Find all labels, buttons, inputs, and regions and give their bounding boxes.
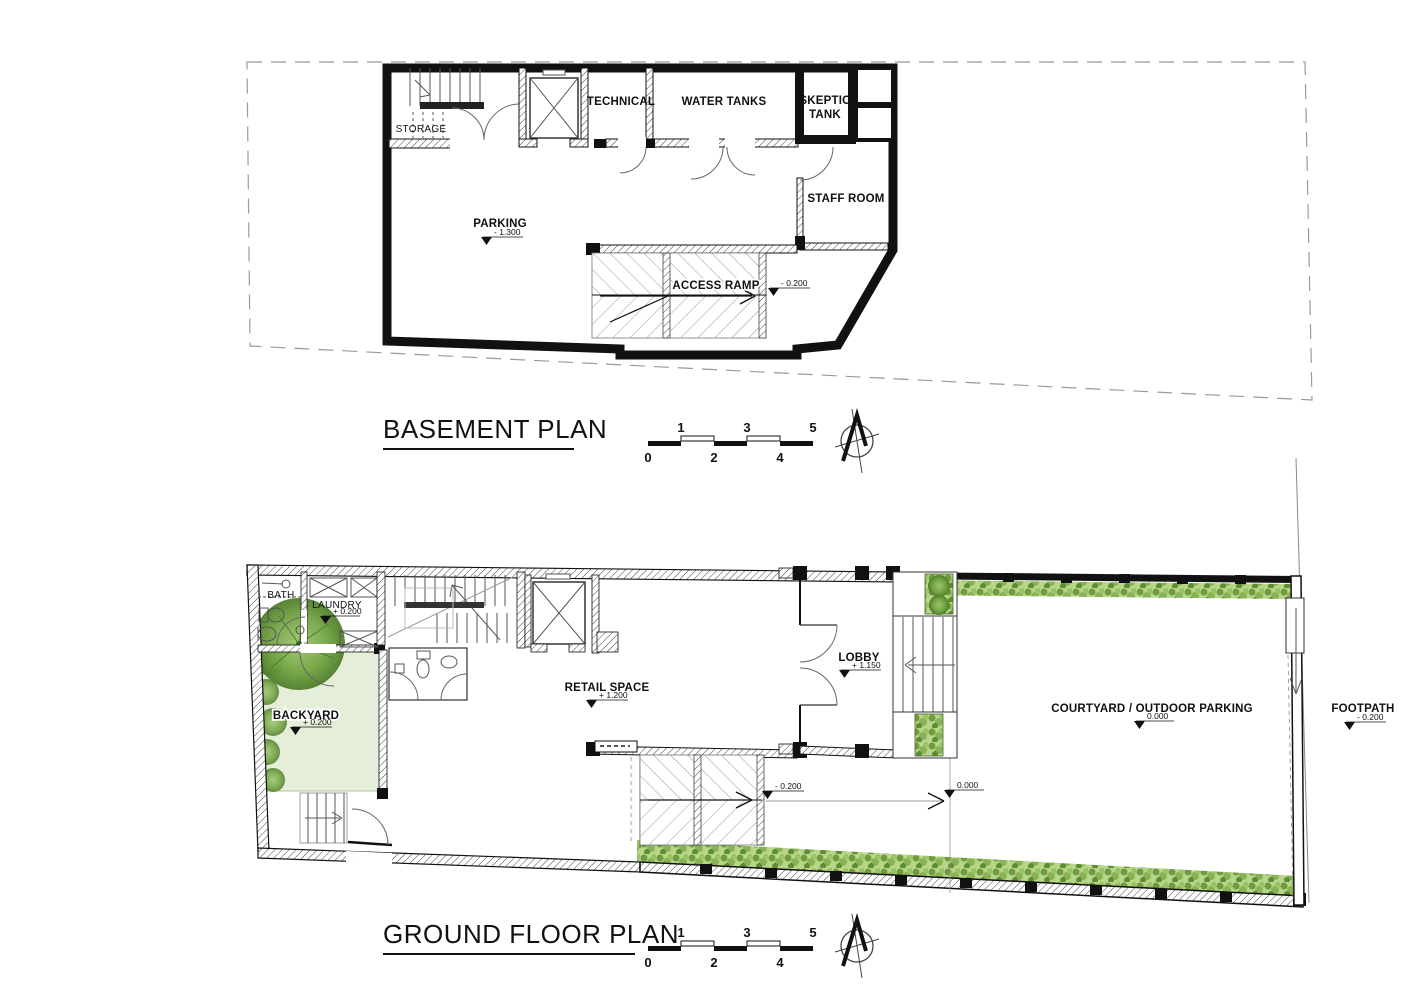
entry-stair [893, 572, 957, 758]
scale-tick: 2 [710, 955, 717, 970]
ground-room-label-bath: BATH [267, 590, 294, 601]
scale-tick: 5 [809, 925, 816, 940]
scale-tick: 0 [644, 450, 651, 465]
scale-tick: 1 [677, 925, 684, 940]
basement-scale-bar: 1 3 5 0 2 4 [644, 420, 816, 465]
ground-title-block: GROUND FLOOR PLAN [383, 919, 679, 954]
basement-elevator [519, 68, 588, 147]
ground-bottom-wall [258, 848, 640, 872]
basement-room-label-access-ramp: ACCESS RAMP [672, 280, 759, 292]
svg-text:- 0.200: - 0.200 [781, 278, 808, 288]
svg-text:0.000: 0.000 [957, 780, 979, 790]
courtyard-gate [1286, 576, 1304, 905]
wall-stair-hall-right [517, 572, 525, 648]
svg-text:+ 1.150: + 1.150 [852, 660, 881, 670]
scale-tick: 2 [710, 450, 717, 465]
basement-title-block: BASEMENT PLAN [383, 414, 607, 449]
scale-tick: 1 [677, 420, 684, 435]
wall-backyard-retail [379, 650, 387, 795]
svg-text:- 1.300: - 1.300 [494, 227, 521, 237]
ground-ramp [631, 755, 764, 848]
basement-wall [797, 178, 803, 242]
svg-text:0.000: 0.000 [1147, 711, 1169, 721]
basement-wall [800, 243, 888, 250]
ground-wc [389, 648, 467, 700]
basement-room-label-skeptic-2: TANK [809, 109, 841, 121]
north-arrow-icon [835, 914, 879, 978]
svg-text:+ 0.200: + 0.200 [333, 606, 362, 616]
basement-room-label-staff-room: STAFF ROOM [807, 193, 884, 205]
svg-text:- 0.200: - 0.200 [1357, 712, 1384, 722]
svg-text:+ 1.200: + 1.200 [599, 690, 628, 700]
level-marker: - 0.200 [762, 781, 804, 799]
stair-handrail [404, 602, 484, 608]
ground-elevator [525, 574, 618, 653]
door-arc [352, 809, 388, 845]
basement-room-label-technical: TECHNICAL [587, 96, 655, 108]
ground-title: GROUND FLOOR PLAN [383, 919, 679, 949]
ground-stair-lower [300, 793, 347, 843]
basement-title: BASEMENT PLAN [383, 414, 607, 444]
floor-plan-drawing: STORAGE TECHNICAL WATER TANKS SKEPTIC TA… [0, 0, 1414, 1000]
basement-room-label-storage: STORAGE [396, 124, 447, 135]
scale-tick: 5 [809, 420, 816, 435]
scale-tick: 3 [743, 420, 750, 435]
wall-stair-hall-left [377, 572, 385, 645]
svg-text:- 0.200: - 0.200 [775, 781, 802, 791]
scale-tick: 4 [776, 450, 784, 465]
ground-floor-plan: BATH LAUNDRY + 0.200 BACKYARD + 0.200 RE… [247, 458, 1395, 907]
svg-text:+ 0.200: + 0.200 [303, 717, 332, 727]
ground-stair-main [388, 575, 513, 643]
basement-plan: STORAGE TECHNICAL WATER TANKS SKEPTIC TA… [247, 62, 1312, 400]
basement-room-label-water-tanks: WATER TANKS [682, 96, 767, 108]
scale-tick: 4 [776, 955, 784, 970]
floor-plan-sheet: STORAGE TECHNICAL WATER TANKS SKEPTIC TA… [0, 0, 1414, 1000]
north-arrow-icon [835, 409, 879, 473]
basement-room-label-skeptic-1: SKEPTIC [799, 95, 850, 107]
scale-tick: 0 [644, 955, 651, 970]
scale-tick: 3 [743, 925, 750, 940]
